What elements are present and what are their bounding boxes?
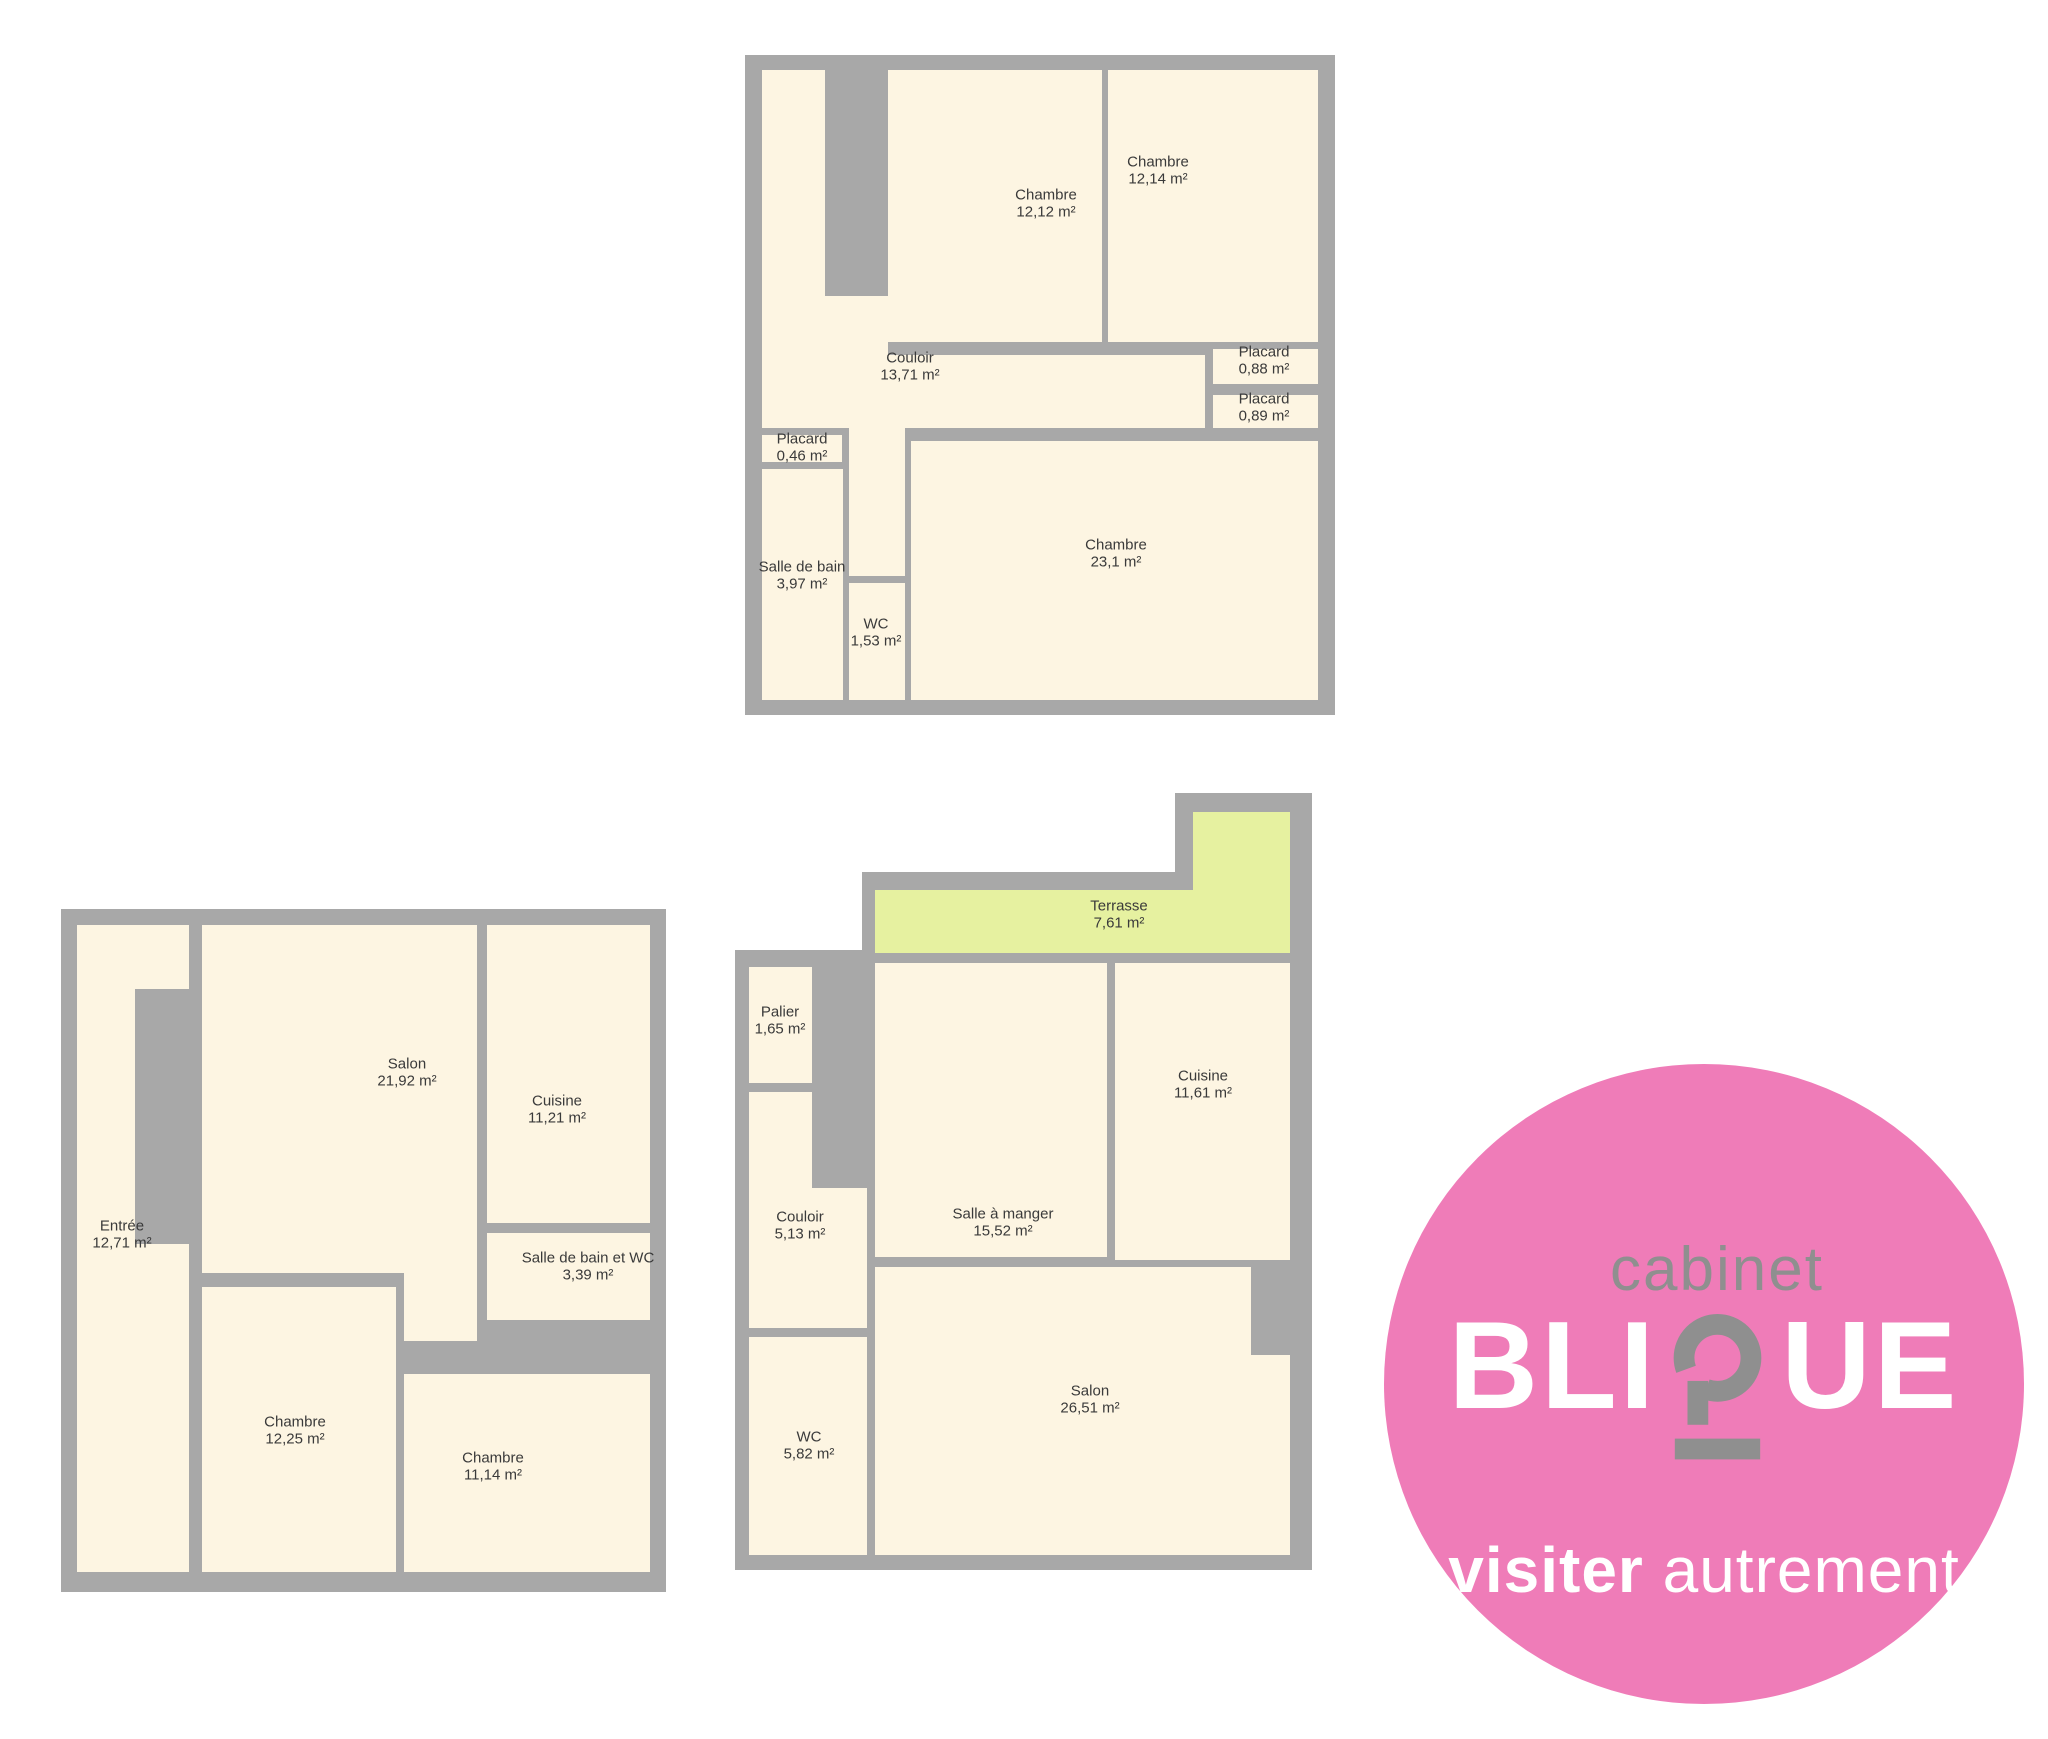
room-area: 5,82 m² xyxy=(784,1446,835,1463)
room-label-entree-1271: Entrée 12,71 m² xyxy=(92,1219,151,1252)
room-area: 3,39 m² xyxy=(522,1267,655,1284)
room-salon-floor xyxy=(202,925,477,1273)
room-name: WC xyxy=(784,1430,835,1447)
room-label-couloir-1371: Couloir 13,71 m² xyxy=(880,351,939,384)
agency-logo-badge: cabinet BLI UE visiter autrement xyxy=(1384,1064,2024,1704)
room-name: Placard xyxy=(1239,392,1290,409)
room-label-cuisine-1161: Cuisine 11,61 m² xyxy=(1174,1069,1232,1102)
duct-block xyxy=(1251,1260,1312,1355)
room-area: 21,92 m² xyxy=(377,1073,436,1090)
room-name: Chambre xyxy=(1127,155,1189,172)
room-area: 11,61 m² xyxy=(1174,1085,1232,1102)
room-name: Entrée xyxy=(92,1219,151,1236)
logo-brand-post: UE xyxy=(1781,1304,1959,1428)
logo-word-cabinet: cabinet xyxy=(1397,1234,2037,1305)
room-label-palier-165: Palier 1,65 m² xyxy=(755,1005,806,1038)
logo-brand-pre: BLI xyxy=(1448,1304,1657,1428)
room-area: 13,71 m² xyxy=(880,367,939,384)
room-area: 23,1 m² xyxy=(1085,554,1147,571)
logo-tagline-bold: visiter xyxy=(1448,1534,1644,1606)
room-label-terrasse-761: Terrasse 7,61 m² xyxy=(1090,899,1148,932)
room-label-wc-582: WC 5,82 m² xyxy=(784,1430,835,1463)
room-name: Placard xyxy=(1239,345,1290,362)
room-area: 0,89 m² xyxy=(1239,408,1290,425)
room-area: 3,97 m² xyxy=(759,576,846,593)
room-salon-ext-floor xyxy=(404,1273,477,1341)
logo-q-icon xyxy=(1659,1314,1775,1464)
room-area: 7,61 m² xyxy=(1090,915,1148,932)
room-name: Cuisine xyxy=(528,1094,586,1111)
room-label-placard-089: Placard 0,89 m² xyxy=(1239,392,1290,425)
room-name: Salle à manger xyxy=(953,1207,1054,1224)
logo-word-blique: BLI UE xyxy=(1448,1304,1959,1464)
room-terrasse-band-floor xyxy=(875,890,1290,953)
room-area: 1,65 m² xyxy=(755,1021,806,1038)
room-area: 26,51 m² xyxy=(1060,1400,1119,1417)
room-chambre-1214-floor xyxy=(1108,70,1318,342)
room-label-chambre-1214: Chambre 12,14 m² xyxy=(1127,155,1189,188)
room-area: 0,88 m² xyxy=(1239,361,1290,378)
room-label-wc-153: WC 1,53 m² xyxy=(851,617,902,650)
logo-tagline: visiter autrement xyxy=(1384,1533,2024,1607)
room-label-placard-046: Placard 0,46 m² xyxy=(777,432,828,465)
room-chambre-1114-floor xyxy=(404,1374,650,1572)
room-label-chambre-1212: Chambre 12,12 m² xyxy=(1015,188,1077,221)
room-couloir-narrow-floor xyxy=(749,1092,812,1188)
room-label-cuisine-1121: Cuisine 11,21 m² xyxy=(528,1094,586,1127)
room-label-chambre-1114: Chambre 11,14 m² xyxy=(462,1451,524,1484)
room-name: Salle de bain et WC xyxy=(522,1251,655,1268)
floor-plan-center: Terrasse 7,61 m² Palier 1,65 m² Couloir … xyxy=(735,793,1312,1570)
room-cuisine-1161-floor xyxy=(1115,963,1290,1260)
room-area: 5,13 m² xyxy=(775,1226,826,1243)
room-name: Chambre xyxy=(462,1451,524,1468)
room-name: Placard xyxy=(777,432,828,449)
room-area: 15,52 m² xyxy=(953,1223,1054,1240)
room-couloir-corridor-floor xyxy=(849,428,905,576)
room-chambre-231-floor xyxy=(911,441,1318,700)
floor-plan-left: Salon 21,92 m² Cuisine 11,21 m² Salle de… xyxy=(61,909,666,1592)
room-name: Chambre xyxy=(264,1415,326,1432)
room-area: 0,46 m² xyxy=(777,448,828,465)
room-area: 12,14 m² xyxy=(1127,171,1189,188)
logo-tagline-light: autrement xyxy=(1663,1534,1960,1606)
room-label-salon-2651: Salon 26,51 m² xyxy=(1060,1384,1119,1417)
room-label-placard-088: Placard 0,88 m² xyxy=(1239,345,1290,378)
room-name: WC xyxy=(851,617,902,634)
room-label-sdb-wc-339: Salle de bain et WC 3,39 m² xyxy=(522,1251,655,1284)
room-name: Cuisine xyxy=(1174,1069,1232,1086)
room-label-chambre-1225: Chambre 12,25 m² xyxy=(264,1415,326,1448)
floorplan-page: Chambre 12,12 m² Chambre 12,14 m² Couloi… xyxy=(0,0,2048,1739)
room-name: Salon xyxy=(1060,1384,1119,1401)
room-area: 1,53 m² xyxy=(851,633,902,650)
room-name: Palier xyxy=(755,1005,806,1022)
room-label-salle-a-manger: Salle à manger 15,52 m² xyxy=(953,1207,1054,1240)
room-name: Couloir xyxy=(775,1210,826,1227)
room-area: 12,25 m² xyxy=(264,1431,326,1448)
room-name: Chambre xyxy=(1015,188,1077,205)
room-area: 11,21 m² xyxy=(528,1110,586,1127)
room-label-salon-2192: Salon 21,92 m² xyxy=(377,1057,436,1090)
room-name: Terrasse xyxy=(1090,899,1148,916)
room-area: 11,14 m² xyxy=(462,1467,524,1484)
room-name: Salon xyxy=(377,1057,436,1074)
room-label-salle-de-bain: Salle de bain 3,97 m² xyxy=(759,560,846,593)
room-name: Salle de bain xyxy=(759,560,846,577)
closet-block xyxy=(135,989,189,1244)
room-label-couloir-513: Couloir 5,13 m² xyxy=(775,1210,826,1243)
room-label-chambre-231: Chambre 23,1 m² xyxy=(1085,538,1147,571)
room-terrasse-upper-floor xyxy=(1193,812,1290,890)
room-name: Chambre xyxy=(1085,538,1147,555)
room-name: Couloir xyxy=(880,351,939,368)
room-area: 12,71 m² xyxy=(92,1235,151,1252)
room-cuisine-floor xyxy=(487,925,650,1223)
room-couloir-band-floor xyxy=(762,355,1205,428)
room-area: 12,12 m² xyxy=(1015,204,1077,221)
floor-plan-upper: Chambre 12,12 m² Chambre 12,14 m² Couloi… xyxy=(745,55,1335,715)
